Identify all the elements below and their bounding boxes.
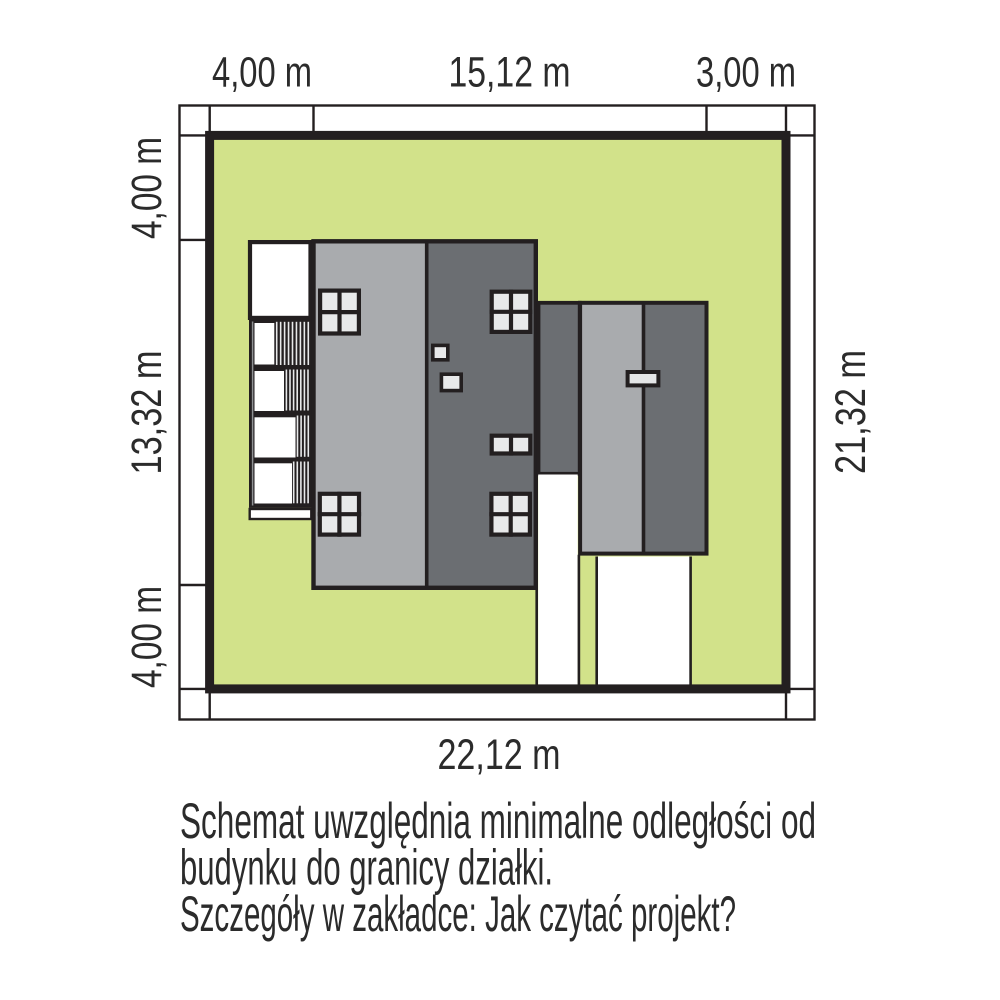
svg-text:13,32 m: 13,32 m — [123, 351, 171, 475]
svg-text:3,00 m: 3,00 m — [696, 49, 796, 97]
svg-text:22,12 m: 22,12 m — [438, 731, 561, 779]
svg-text:4,00 m: 4,00 m — [123, 586, 171, 688]
svg-text:Szczegóły w zakładce: Jak czyt: Szczegóły w zakładce: Jak czytać projekt… — [180, 886, 736, 942]
svg-text:21,32 m: 21,32 m — [827, 350, 875, 474]
svg-text:4,00 m: 4,00 m — [212, 49, 312, 97]
svg-text:4,00 m: 4,00 m — [123, 137, 171, 239]
svg-text:15,12 m: 15,12 m — [449, 49, 571, 97]
